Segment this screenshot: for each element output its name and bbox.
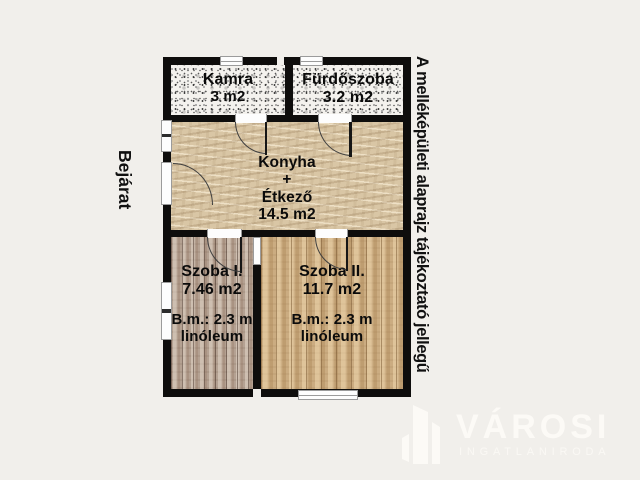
brand-watermark: VÁROSI INGATLANIRODA [398, 400, 628, 470]
door-leaf-furdoszoba [349, 122, 352, 157]
window-kamra [220, 56, 243, 66]
floor-plan: Kamra 3 m2 Fürdőszoba 3.2 m2 Konyha + Ét… [163, 57, 411, 397]
entrance-label: Bejárat [114, 150, 135, 209]
ceiling-height: B.m.: 2.3 m [291, 312, 372, 329]
room-kamra: Kamra 3 m2 [171, 65, 285, 115]
room-name: Kamra [203, 71, 253, 89]
window-furdoszoba [300, 56, 323, 66]
door-leaf-szoba-1 [240, 237, 243, 273]
window-szoba-2-bottom [298, 390, 358, 400]
window-sash-divider [162, 309, 171, 313]
entrance-door [161, 162, 172, 205]
room-area: 14.5 m2 [258, 206, 316, 223]
room-area: 11.7 m2 [299, 281, 365, 299]
room-area: 7.46 m2 [181, 281, 242, 299]
plus-sign: + [258, 171, 316, 188]
floor-covering: linóleum [291, 329, 372, 346]
room-furdoszoba: Fürdőszoba 3.2 m2 [293, 65, 403, 115]
window-konyha-left [161, 120, 172, 152]
room-name-2: Étkező [258, 189, 316, 206]
wall-seam [277, 57, 284, 65]
floor-covering: linóleum [171, 329, 252, 346]
window-szoba-1-left [161, 282, 172, 340]
disclaimer-note: A melléképületi alaprajz tájékoztató jel… [412, 56, 431, 372]
room-szoba-2-label: Szoba II. 11.7 m2 [299, 263, 365, 299]
door-leaf-szoba-2 [346, 237, 349, 271]
building-logo-icon [402, 402, 446, 465]
window-sash-divider [162, 134, 171, 137]
brand-subtitle: INGATLANIRODA [459, 446, 610, 458]
room-szoba-2-details: B.m.: 2.3 m linóleum [291, 312, 372, 346]
room-kamra-label: Kamra 3 m2 [203, 71, 253, 106]
room-szoba-1-details: B.m.: 2.3 m linóleum [171, 312, 252, 346]
room-name: Konyha [258, 154, 316, 171]
room-furdoszoba-label: Fürdőszoba 3.2 m2 [302, 71, 394, 107]
wall-seam [253, 389, 261, 397]
room-konyha: Konyha + Étkező 14.5 m2 [171, 122, 403, 230]
ceiling-height: B.m.: 2.3 m [171, 312, 252, 329]
room-area: 3 m2 [203, 89, 253, 106]
door-leaf-kamra [265, 122, 268, 155]
room-name: Fürdőszoba [302, 71, 394, 89]
room-area: 3.2 m2 [302, 89, 394, 107]
doorway-between-rooms [253, 237, 261, 265]
room-konyha-label: Konyha + Étkező 14.5 m2 [258, 154, 316, 223]
brand-name: VÁROSI [456, 408, 610, 447]
floorplan-page: Kamra 3 m2 Fürdőszoba 3.2 m2 Konyha + Ét… [0, 0, 640, 480]
